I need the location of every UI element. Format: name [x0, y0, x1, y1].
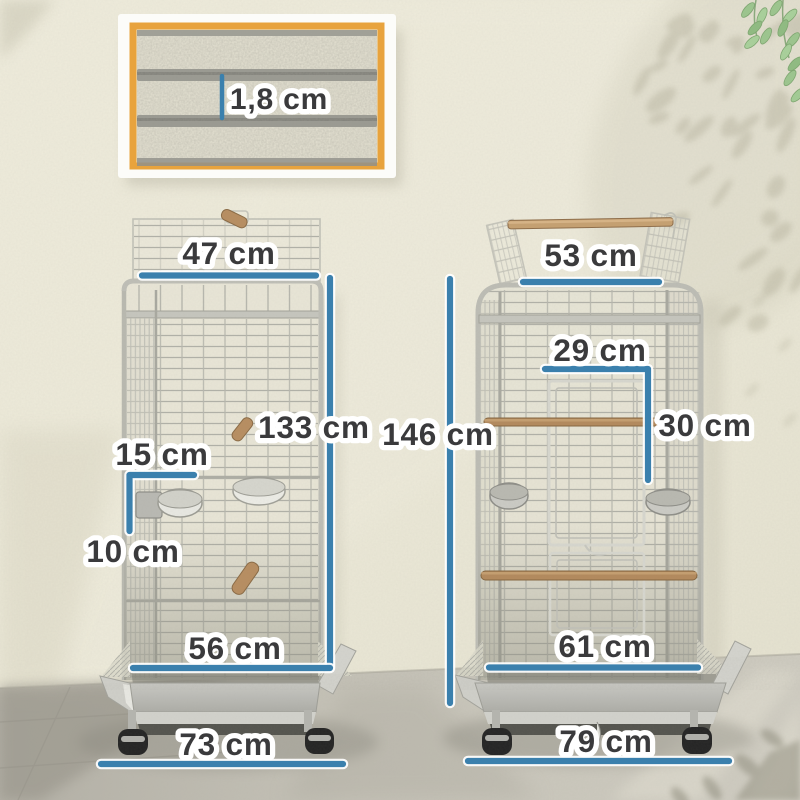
svg-text:29 cm: 29 cm	[553, 332, 646, 368]
svg-text:146 cm: 146 cm	[382, 416, 494, 452]
svg-text:133 cm: 133 cm	[258, 409, 370, 445]
svg-text:1,8 cm: 1,8 cm	[230, 83, 328, 116]
svg-text:53 cm: 53 cm	[544, 237, 637, 273]
svg-text:15 cm: 15 cm	[115, 436, 208, 472]
svg-text:56 cm: 56 cm	[188, 630, 281, 666]
svg-text:79 cm: 79 cm	[559, 723, 652, 759]
svg-text:47 cm: 47 cm	[182, 235, 275, 271]
svg-text:30 cm: 30 cm	[658, 407, 751, 443]
svg-text:73 cm: 73 cm	[179, 726, 272, 762]
svg-text:10 cm: 10 cm	[86, 533, 179, 569]
svg-text:61 cm: 61 cm	[558, 628, 651, 664]
